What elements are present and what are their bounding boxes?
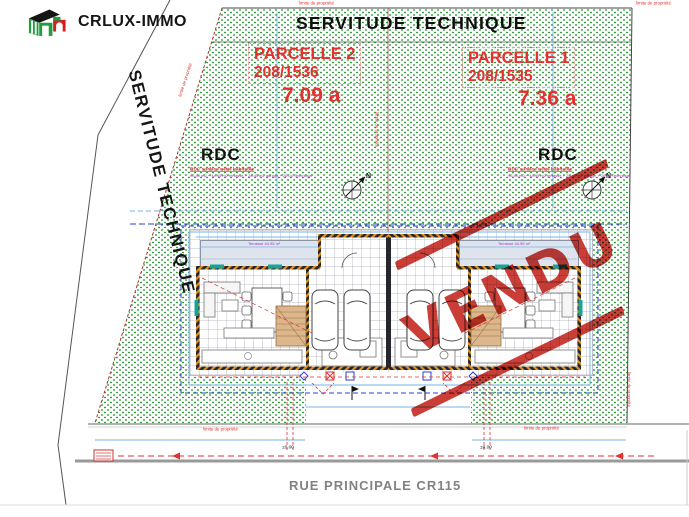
parcel2-lot-number: 208/1536 (254, 64, 355, 82)
rdc-surface-title-right: RDC surface nette habitable (508, 167, 572, 172)
boundary-label: limite de propriété (203, 427, 238, 432)
rdc-surface-detail-left: 95.40 m2 + 44.95 m2 terrasse + 28.45 m2 … (190, 174, 312, 178)
parcel1-box: PARCELLE 1 208/1535 (462, 47, 575, 88)
site-plan-page: N N CRLUX-IMMO SERVITUDE TECHNIQUE SERVI… (0, 0, 689, 517)
terrace-label-left: Terrasse 44.95 m² (248, 242, 280, 246)
boundary-label: limite de propriété (299, 1, 333, 6)
housing-unit-left (195, 234, 390, 452)
brand-name: CRLUX-IMMO (78, 13, 187, 31)
parcel2-name: PARCELLE 2 (254, 45, 355, 64)
rdc-label-right: RDC (538, 145, 578, 165)
boundary-label: limite de propriété (524, 426, 559, 431)
rdc-surface-title-left: RDC surface nette habitable (190, 167, 254, 172)
parcel1-lot-number: 208/1535 (468, 68, 569, 86)
level-marker-right: ±0.00 (480, 445, 492, 450)
boundary-label: limite de propriété (626, 372, 631, 407)
servitude-top-title: SERVITUDE TECHNIQUE (296, 13, 527, 34)
rdc-label-left: RDC (201, 145, 241, 165)
north-compass-left: N (343, 173, 371, 199)
logo-house-icon (26, 6, 70, 38)
parcel1-name: PARCELLE 1 (468, 49, 569, 68)
parcel2-area: 7.09 a (282, 84, 340, 108)
parcel2-box: PARCELLE 2 208/1536 (248, 43, 361, 84)
boundary-label: limite de propriété (374, 112, 379, 147)
boundary-label: limite de propriété (636, 1, 670, 6)
logo: CRLUX-IMMO (26, 6, 187, 38)
svg-text:N: N (366, 173, 371, 180)
parcel1-area: 7.36 a (518, 87, 576, 111)
street-name: RUE PRINCIPALE CR115 (289, 478, 461, 493)
level-marker-left: ±0.00 (282, 445, 294, 450)
